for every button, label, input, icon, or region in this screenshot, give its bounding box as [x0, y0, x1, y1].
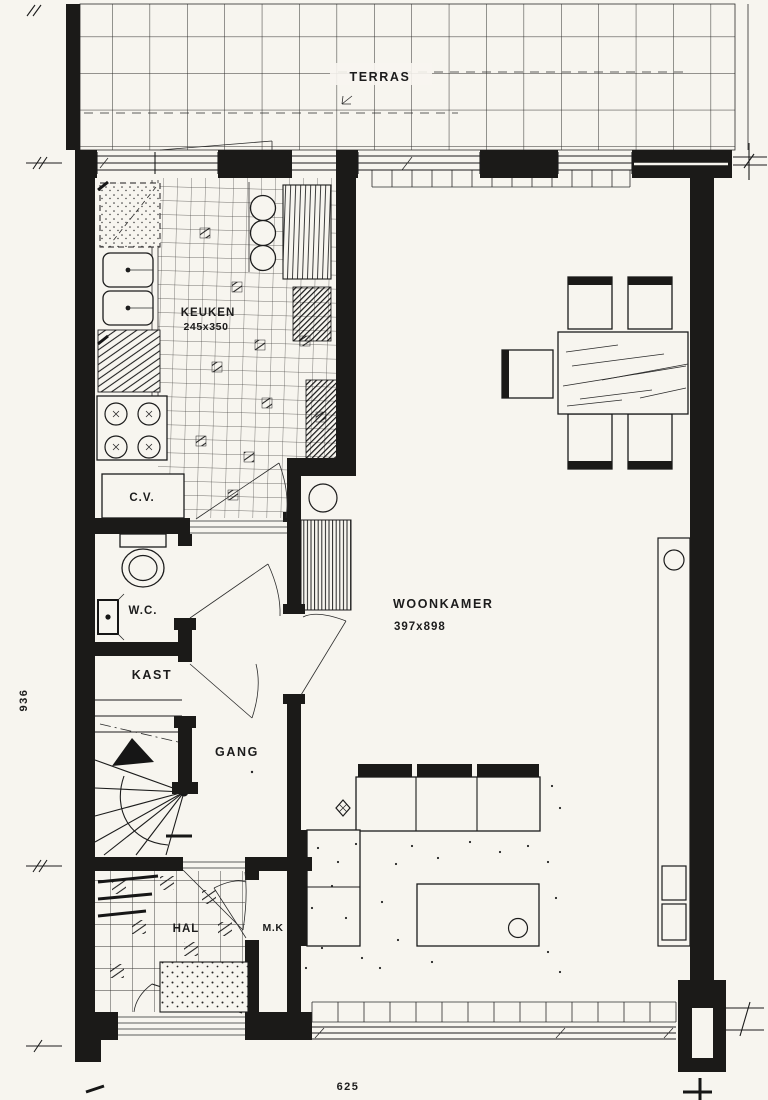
cv-unit: C.V. [102, 474, 184, 518]
mk-label: M.K [262, 922, 283, 934]
side-table-round [309, 484, 337, 512]
toilet-paper-holder [98, 594, 124, 640]
right-witness-marks [726, 143, 767, 1036]
stove [97, 396, 167, 460]
plant-marker [336, 800, 350, 816]
left-exterior-wall [75, 150, 95, 1040]
keuken-size: 245x350 [183, 321, 228, 333]
wc-door [190, 564, 280, 618]
dimension-side: 936 [18, 689, 30, 712]
doormat [160, 962, 248, 1012]
radiator [301, 484, 351, 610]
stair-direction-arrow [112, 738, 154, 766]
floor-plan-drawing: TERRAS [0, 0, 768, 1100]
dimension-bottom: 625 [337, 1081, 360, 1093]
gang-label: GANG [215, 745, 259, 759]
kitchen-sink [103, 253, 153, 325]
kitchen-window [97, 152, 218, 174]
living-room-door [301, 614, 346, 695]
wc-kast-wall [95, 642, 192, 656]
kitchen-bottom-wall [95, 518, 190, 534]
living-top-window [558, 152, 632, 174]
kitchen-living-wall [336, 178, 356, 462]
wc-label: W.C. [129, 605, 158, 617]
cv-label: C.V. [129, 492, 154, 504]
stair-walk-line [100, 724, 178, 742]
dining-table [558, 332, 688, 414]
toilet [120, 534, 166, 587]
living-bottom-window [312, 1002, 676, 1039]
terras-label: TERRAS [350, 70, 411, 84]
wall-unit [658, 538, 690, 946]
hal-top-wall [95, 857, 183, 871]
kast-door [190, 664, 258, 718]
mk-right-wall [287, 871, 301, 1012]
top-wall-segment [218, 150, 292, 178]
fridge [98, 182, 160, 247]
hal-label: HAL [173, 923, 200, 935]
draining-board [249, 182, 331, 279]
dining-chair [502, 350, 553, 398]
woonkamer-size: 397x898 [394, 621, 446, 633]
kast-label: KAST [132, 668, 172, 682]
right-exterior-wall [690, 166, 714, 990]
dining-chair [628, 414, 672, 469]
dining-chair [568, 414, 612, 469]
coffee-table [417, 884, 539, 946]
terrace: TERRAS [66, 4, 748, 150]
floor-plan-page: TERRAS [0, 0, 768, 1100]
left-witness-marks [26, 5, 62, 1052]
hall-living-wall [287, 476, 301, 612]
keuken-label: KEUKEN [181, 307, 236, 319]
terrace-left-edge [66, 4, 80, 150]
bottom-witness-marks [86, 1078, 712, 1100]
counter-hatched-section [98, 330, 160, 392]
dining-set [502, 277, 688, 469]
woonkamer-label: WOONKAMER [393, 597, 494, 611]
